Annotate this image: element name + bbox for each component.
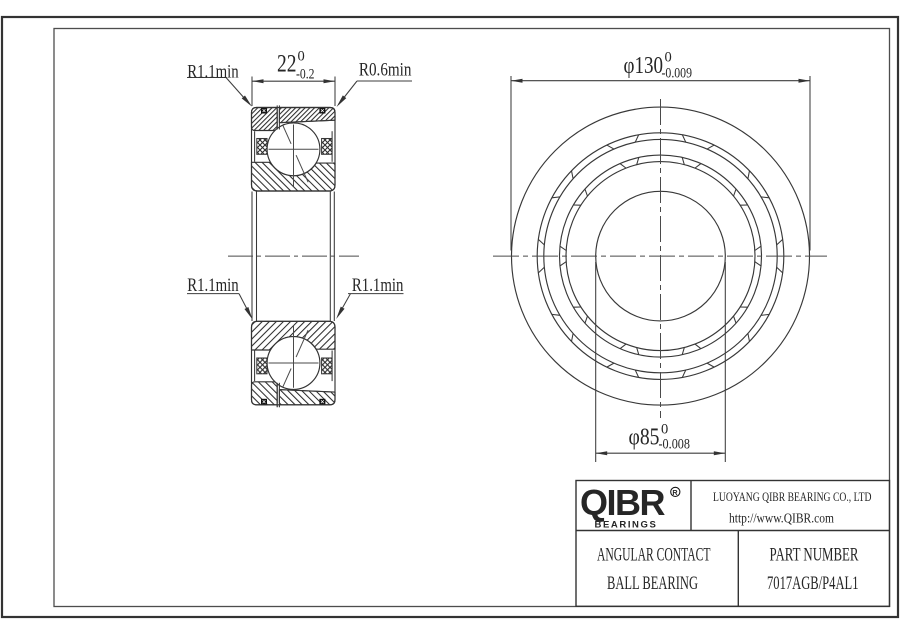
svg-text:R0.6min: R0.6min — [359, 60, 412, 81]
svg-text:-0.009: -0.009 — [662, 65, 693, 81]
svg-text:LUOYANG QIBR BEARING CO., LTD: LUOYANG QIBR BEARING CO., LTD — [713, 489, 872, 504]
svg-text:0: 0 — [298, 48, 305, 64]
svg-text:BALL BEARING: BALL BEARING — [607, 574, 698, 594]
svg-text:22: 22 — [277, 50, 297, 77]
svg-text:-0.008: -0.008 — [659, 436, 691, 452]
svg-text:http://www.QIBR.com: http://www.QIBR.com — [729, 510, 834, 525]
svg-text:R: R — [672, 488, 678, 497]
svg-text:φ130: φ130 — [624, 53, 664, 79]
svg-text:-0.2: -0.2 — [296, 66, 315, 82]
svg-text:ANGULAR CONTACT: ANGULAR CONTACT — [597, 546, 711, 566]
svg-text:0: 0 — [661, 421, 668, 437]
svg-text:R1.1min: R1.1min — [187, 275, 239, 296]
svg-text:PART NUMBER: PART NUMBER — [770, 546, 859, 566]
svg-text:BEARINGS: BEARINGS — [595, 520, 658, 531]
svg-text:0: 0 — [665, 49, 672, 65]
svg-text:R1.1min: R1.1min — [352, 275, 404, 296]
svg-text:φ85: φ85 — [629, 425, 660, 451]
svg-text:7017AGB/P4AL1: 7017AGB/P4AL1 — [767, 574, 859, 594]
svg-text:QIBR: QIBR — [580, 482, 666, 523]
svg-text:R1.1min: R1.1min — [187, 61, 239, 82]
